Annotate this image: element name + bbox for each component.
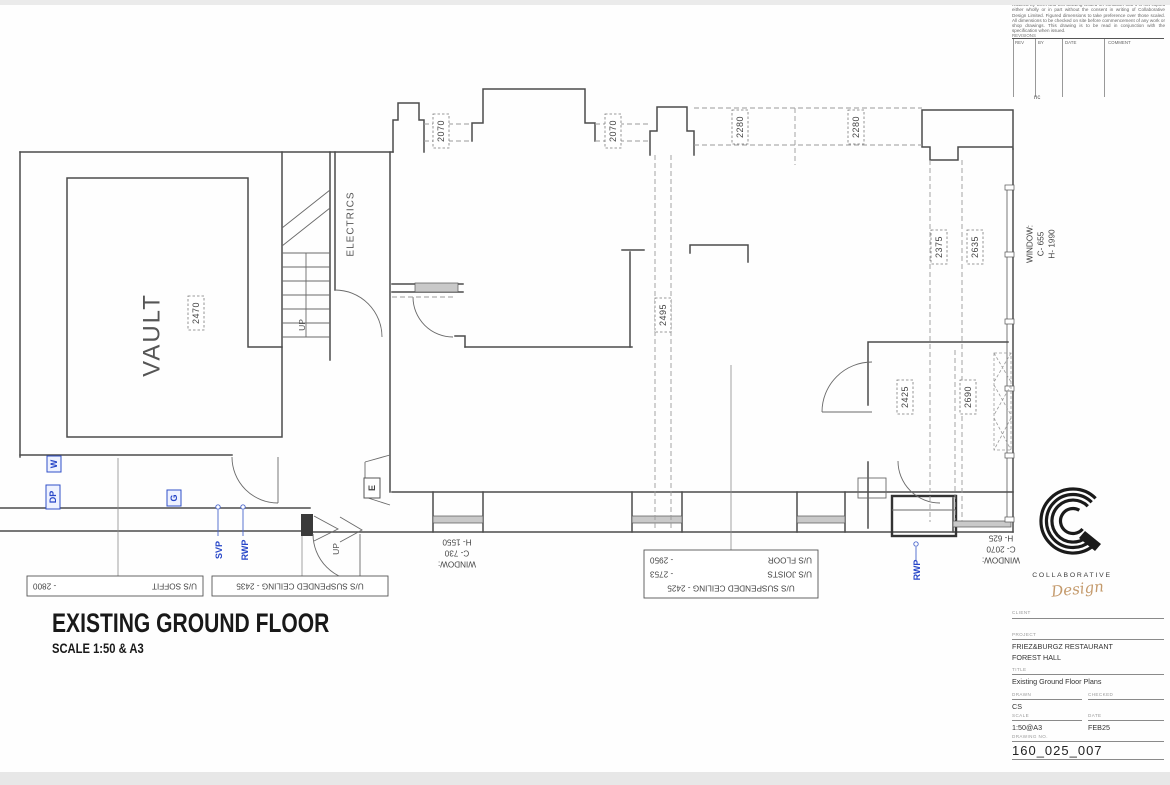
revision-grid-line bbox=[1035, 39, 1036, 97]
scale-value: 1:50@A3 bbox=[1012, 723, 1042, 732]
svg-text:- 2800: - 2800 bbox=[33, 582, 57, 591]
svg-text:SVP: SVP bbox=[214, 541, 224, 559]
title-block: CLIENT PROJECT FRIEZ&BURGZ RESTAURANT FO… bbox=[1012, 610, 1164, 760]
title-block-line bbox=[1012, 618, 1164, 619]
dimension-2375: 2375 bbox=[931, 230, 947, 264]
disclaimer-text: retained by them and this drawing issued… bbox=[1012, 2, 1165, 34]
svg-text:2495: 2495 bbox=[658, 304, 668, 326]
dimension-2425: 2425 bbox=[897, 380, 913, 414]
revision-grid-line bbox=[1013, 39, 1014, 97]
utility-label-dp: DP bbox=[46, 485, 60, 509]
svg-text:G: G bbox=[169, 494, 179, 501]
revision-col-date: DATE bbox=[1065, 40, 1076, 45]
ceiling-note-multi: U/S SUSPENDED CEILING - 2425 U/S JOISTS … bbox=[644, 550, 818, 598]
dimension-2280-b: 2280 bbox=[848, 110, 864, 144]
revision-table: REVISIONS REV BY DATE COMMENT bbox=[1012, 34, 1164, 98]
title-block-line bbox=[1012, 639, 1164, 640]
drawing-scale: SCALE 1:50 & A3 bbox=[52, 640, 144, 656]
svg-text:2425: 2425 bbox=[900, 386, 910, 408]
scan-edge-top bbox=[0, 0, 1170, 5]
dimension-2280-a: 2280 bbox=[732, 110, 748, 144]
floor-plan-canvas: 2070 2070 2280 2280 2375 2635 2495 2470 … bbox=[0, 0, 1170, 785]
svg-text:2635: 2635 bbox=[970, 236, 980, 258]
project-label: PROJECT bbox=[1012, 632, 1036, 637]
revision-grid-line bbox=[1062, 39, 1063, 97]
margin-note: nc bbox=[1034, 95, 1040, 101]
svg-text:U/S SUSPENDED CEILING - 2435: U/S SUSPENDED CEILING - 2435 bbox=[236, 582, 364, 591]
svg-text:2280: 2280 bbox=[735, 116, 745, 138]
dimension-2470: 2470 bbox=[188, 296, 204, 330]
svg-text:U/S SOFFIT: U/S SOFFIT bbox=[152, 582, 197, 591]
drawn-label: DRAWN bbox=[1012, 692, 1031, 697]
date-label: DATE bbox=[1088, 713, 1102, 718]
scan-edge-bottom bbox=[0, 772, 1170, 785]
drawing-number-label: DRAWING NO. bbox=[1012, 734, 1048, 739]
window-note-right-side: WINDOW: C- 655 H- 1990 bbox=[1026, 225, 1057, 263]
ceiling-note-suspended: U/S SUSPENDED CEILING - 2435 bbox=[212, 576, 388, 596]
drawing-title: EXISTING GROUND FLOOR bbox=[52, 608, 329, 639]
svg-text:WINDOW:: WINDOW: bbox=[1026, 225, 1035, 263]
utility-label-rwp-left: RWP bbox=[240, 540, 250, 561]
doors bbox=[232, 290, 940, 581]
svg-text:H- 625: H- 625 bbox=[988, 534, 1013, 543]
svg-text:Design: Design bbox=[1049, 577, 1104, 601]
svg-text:2070: 2070 bbox=[436, 120, 446, 142]
svg-text:U/S FLOOR: U/S FLOOR bbox=[768, 556, 812, 565]
svg-text:2280: 2280 bbox=[851, 116, 861, 138]
svg-text:ELECTRICS: ELECTRICS bbox=[346, 191, 357, 256]
svg-text:- 2753: - 2753 bbox=[650, 570, 674, 579]
revision-grid-line bbox=[1104, 39, 1105, 97]
svg-text:H- 1550: H- 1550 bbox=[442, 538, 472, 547]
svg-text:2070: 2070 bbox=[608, 120, 618, 142]
leader-lines bbox=[118, 365, 918, 577]
title-label: TITLE bbox=[1012, 667, 1027, 672]
ceiling-note-soffit: U/S SOFFIT - 2800 bbox=[27, 576, 203, 596]
sheet-title: Existing Ground Floor Plans bbox=[1012, 677, 1102, 686]
project-name: FRIEZ&BURGZ RESTAURANT bbox=[1012, 642, 1113, 651]
room-label-vault: VAULT bbox=[139, 293, 166, 377]
stair-treads bbox=[282, 190, 330, 337]
svg-text:2470: 2470 bbox=[191, 302, 201, 324]
project-location: FOREST HALL bbox=[1012, 653, 1061, 662]
title-block-line bbox=[1088, 699, 1164, 700]
revision-col-comment: COMMENT bbox=[1108, 40, 1131, 45]
utility-label-svp: SVP bbox=[214, 541, 224, 559]
scale-label: SCALE bbox=[1012, 713, 1029, 718]
svg-text:WINDOW:: WINDOW: bbox=[982, 556, 1020, 565]
stair-up-label: UP bbox=[297, 319, 307, 331]
dimension-2070-a: 2070 bbox=[433, 114, 449, 148]
window-note-bottom-left: WINDOW: C- 730 H- 1550 bbox=[438, 538, 476, 569]
title-block-line bbox=[1088, 720, 1164, 721]
dimension-2070-b: 2070 bbox=[605, 114, 621, 148]
entrance-up-label: UP bbox=[331, 543, 341, 555]
revision-col-rev: REV bbox=[1015, 40, 1024, 45]
client-label: CLIENT bbox=[1012, 610, 1031, 615]
title-block-line bbox=[1012, 741, 1164, 742]
window-note-bottom-right: WINDOW: C- 2070 H- 625 bbox=[982, 534, 1020, 565]
svg-text:U/S SUSPENDED CEILING - 2425: U/S SUSPENDED CEILING - 2425 bbox=[667, 584, 795, 593]
svg-text:VAULT: VAULT bbox=[139, 293, 166, 377]
utility-label-g: G bbox=[167, 490, 181, 506]
svg-text:- 2950: - 2950 bbox=[650, 556, 674, 565]
svg-text:UP: UP bbox=[331, 543, 341, 555]
utility-label-rwp-right: RWP bbox=[912, 560, 922, 581]
title-block-line bbox=[1012, 674, 1164, 675]
svg-text:C- 2070: C- 2070 bbox=[986, 545, 1016, 554]
svg-text:W: W bbox=[49, 459, 59, 468]
svg-text:H- 1990: H- 1990 bbox=[1048, 229, 1057, 259]
checked-label: CHECKED bbox=[1088, 692, 1113, 697]
dimension-2690: 2690 bbox=[960, 380, 976, 414]
dimension-2495: 2495 bbox=[655, 298, 671, 332]
svg-text:UP: UP bbox=[297, 319, 307, 331]
utility-label-w: W bbox=[47, 456, 61, 472]
drawn-by: CS bbox=[1012, 702, 1022, 711]
svg-text:E: E bbox=[367, 485, 377, 491]
svg-text:C- 730: C- 730 bbox=[444, 549, 469, 558]
svg-text:C- 655: C- 655 bbox=[1037, 231, 1046, 256]
collaborative-design-logo: COLLABORATIVE Design bbox=[1032, 489, 1112, 601]
room-label-electrics: ELECTRICS bbox=[346, 191, 357, 256]
title-block-line bbox=[1012, 759, 1164, 760]
svg-text:U/S JOISTS: U/S JOISTS bbox=[767, 570, 812, 579]
drawing-sheet: 2070 2070 2280 2280 2375 2635 2495 2470 … bbox=[0, 0, 1170, 785]
date-value: FEB25 bbox=[1088, 723, 1110, 732]
construction-dashed-lines bbox=[392, 108, 1011, 528]
svg-text:DP: DP bbox=[48, 491, 58, 504]
title-block-line bbox=[1012, 699, 1082, 700]
svg-text:RWP: RWP bbox=[912, 560, 922, 581]
svg-text:2690: 2690 bbox=[963, 386, 973, 408]
svg-text:2375: 2375 bbox=[934, 236, 944, 258]
title-block-line bbox=[1012, 720, 1082, 721]
electric-meter-label: E bbox=[364, 478, 380, 498]
window-glazing bbox=[415, 185, 1014, 527]
svg-text:WINDOW:: WINDOW: bbox=[438, 560, 476, 569]
drawing-number: 160_025_007 bbox=[1012, 743, 1103, 758]
dimension-2635: 2635 bbox=[967, 230, 983, 264]
revision-col-by: BY bbox=[1038, 40, 1044, 45]
svg-text:RWP: RWP bbox=[240, 540, 250, 561]
